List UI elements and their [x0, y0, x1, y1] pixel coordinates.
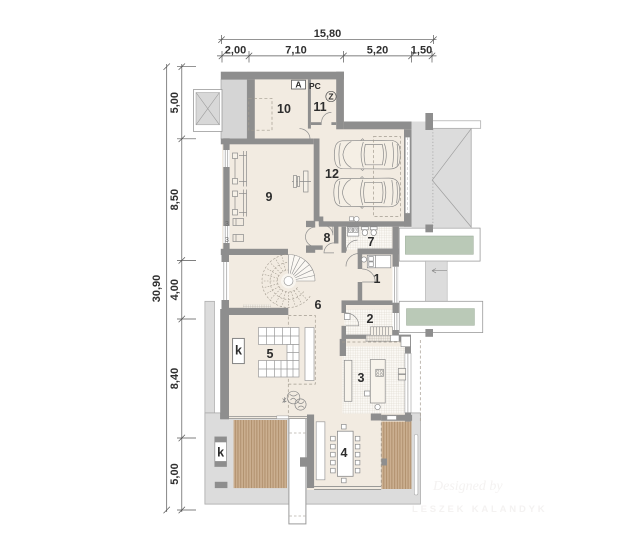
- svg-text:5,20: 5,20: [367, 45, 388, 57]
- svg-text:10: 10: [277, 102, 291, 116]
- svg-text:3: 3: [225, 237, 229, 244]
- svg-text:8,50: 8,50: [169, 189, 181, 210]
- svg-text:7,10: 7,10: [285, 45, 306, 57]
- svg-text:6: 6: [315, 298, 322, 312]
- svg-text:4: 4: [341, 446, 348, 460]
- svg-text:15,80: 15,80: [314, 28, 342, 40]
- svg-text:k: k: [217, 446, 224, 460]
- svg-text:3: 3: [225, 221, 229, 228]
- svg-text:k: k: [235, 344, 242, 358]
- svg-text:2: 2: [367, 312, 374, 326]
- svg-text:Designed by: Designed by: [432, 479, 503, 494]
- svg-text:9: 9: [266, 190, 273, 204]
- svg-text:A: A: [295, 80, 301, 90]
- svg-text:LESZEK KALANDYK: LESZEK KALANDYK: [412, 504, 547, 515]
- svg-text:4,00: 4,00: [169, 279, 181, 300]
- svg-text:1,50: 1,50: [411, 45, 432, 57]
- svg-text:5,00: 5,00: [169, 92, 181, 113]
- svg-text:30,90: 30,90: [151, 275, 163, 303]
- svg-text:5: 5: [267, 347, 274, 361]
- svg-text:7: 7: [368, 235, 375, 249]
- svg-text:2,00: 2,00: [225, 45, 246, 57]
- svg-text:5,00: 5,00: [169, 463, 181, 484]
- svg-text:8: 8: [324, 231, 331, 245]
- svg-text:1: 1: [374, 272, 381, 286]
- svg-text:PC: PC: [309, 81, 321, 91]
- svg-text:8,40: 8,40: [169, 368, 181, 389]
- svg-text:12: 12: [325, 167, 339, 181]
- svg-text:Z: Z: [328, 92, 333, 102]
- svg-text:3: 3: [358, 371, 365, 385]
- svg-text:11: 11: [313, 100, 326, 114]
